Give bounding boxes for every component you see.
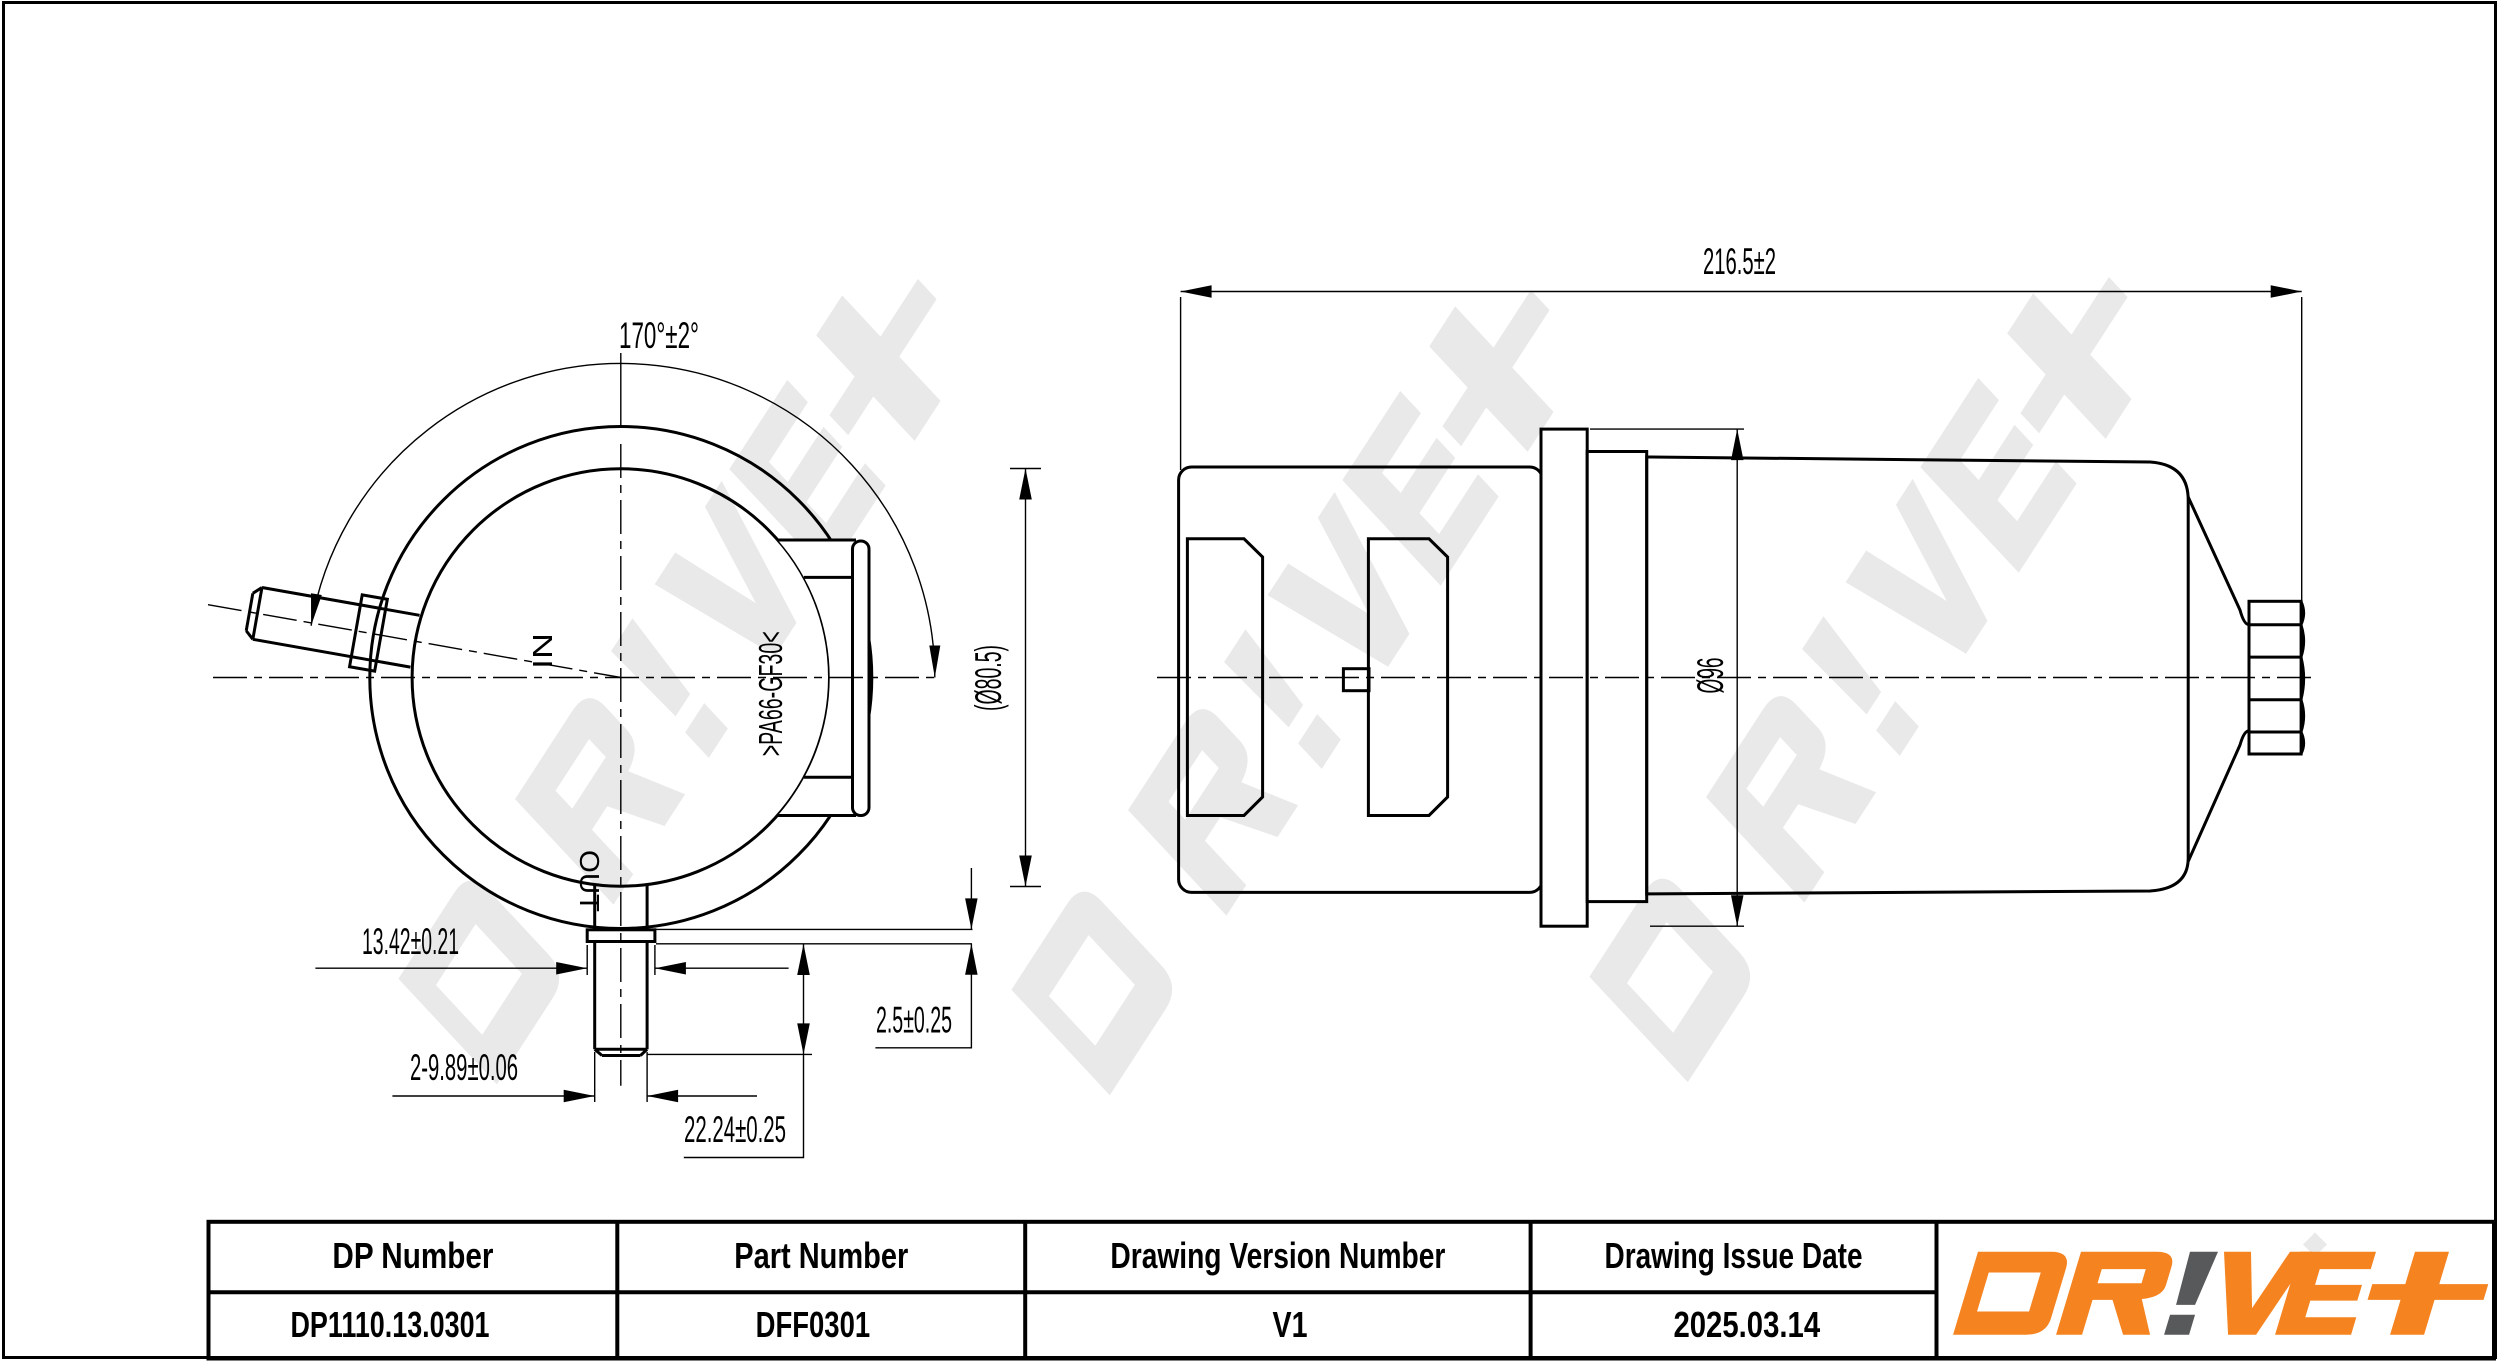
svg-text:Drawing Version Number: Drawing Version Number: [1110, 1235, 1445, 1276]
svg-text:>PA66-GF30<: >PA66-GF30<: [752, 631, 789, 756]
svg-text:216.5±2: 216.5±2: [1703, 241, 1776, 282]
svg-text:Drawing Issue Date: Drawing Issue Date: [1605, 1235, 1863, 1276]
svg-text:V1: V1: [1273, 1304, 1308, 1345]
svg-text:2025.03.14: 2025.03.14: [1673, 1304, 1820, 1345]
svg-text:DP1110.13.0301: DP1110.13.0301: [291, 1304, 490, 1345]
svg-text:OUT: OUT: [574, 850, 605, 912]
svg-text:Part Number: Part Number: [734, 1235, 908, 1276]
svg-text:DFF0301: DFF0301: [756, 1304, 871, 1345]
svg-text:22.24±0.25: 22.24±0.25: [684, 1109, 786, 1150]
svg-text:DP Number: DP Number: [332, 1235, 493, 1276]
svg-text:Ø96: Ø96: [1690, 658, 1731, 694]
svg-text:IN: IN: [527, 633, 558, 669]
svg-text:2-9.89±0.06: 2-9.89±0.06: [410, 1047, 518, 1088]
svg-text:170°±2°: 170°±2°: [619, 315, 699, 356]
svg-text:2.5±0.25: 2.5±0.25: [876, 1000, 952, 1041]
svg-text:13.42±0.21: 13.42±0.21: [362, 921, 459, 962]
svg-text:(Ø80.5): (Ø80.5): [968, 645, 1009, 711]
